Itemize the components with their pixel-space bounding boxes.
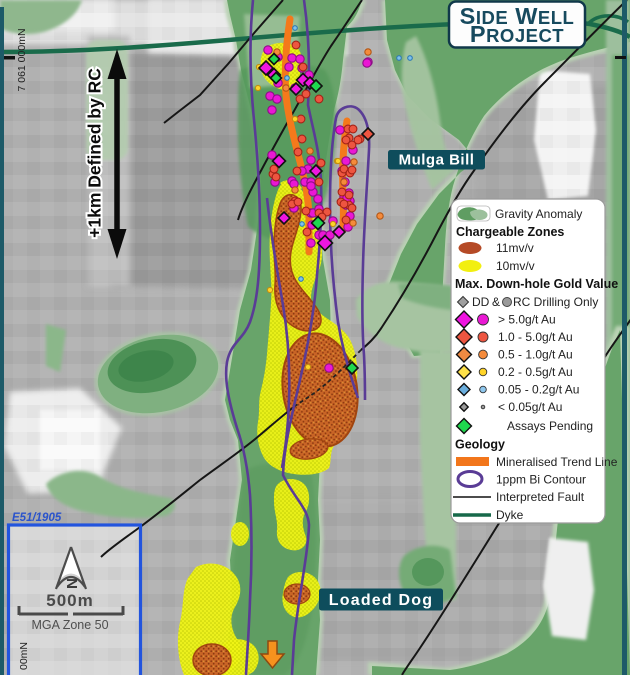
svg-text:Max. Down-hole Gold Value: Max. Down-hole Gold Value: [455, 277, 618, 291]
svg-text:7 061 000mN: 7 061 000mN: [16, 28, 28, 91]
svg-text:N: N: [63, 578, 80, 589]
svg-text:1.0 - 5.0g/t Au: 1.0 - 5.0g/t Au: [498, 330, 573, 344]
svg-text:+1km Defined by RC: +1km Defined by RC: [85, 68, 105, 238]
svg-text:0.5 - 1.0g/t Au: 0.5 - 1.0g/t Au: [498, 348, 573, 362]
svg-text:DD: DD: [472, 295, 490, 309]
svg-text:&: &: [492, 295, 500, 309]
svg-text:10mv/v: 10mv/v: [496, 259, 535, 273]
svg-text:0.2 - 0.5g/t Au: 0.2 - 0.5g/t Au: [498, 365, 573, 379]
svg-text:Mineralised Trend Line: Mineralised Trend Line: [496, 455, 618, 469]
svg-text:Chargeable Zones: Chargeable Zones: [456, 225, 564, 239]
svg-text:E51/1905: E51/1905: [12, 512, 62, 524]
svg-text:> 5.0g/t Au: > 5.0g/t Au: [498, 313, 556, 327]
svg-text:00mN: 00mN: [18, 642, 30, 670]
svg-text:< 0.05g/t Au: < 0.05g/t Au: [498, 400, 562, 414]
svg-text:Interpreted Fault: Interpreted Fault: [496, 490, 585, 504]
svg-text:Loaded Dog: Loaded Dog: [329, 592, 433, 609]
svg-text:MGA Zone 50: MGA Zone 50: [31, 618, 108, 632]
svg-text:Mulga Bill: Mulga Bill: [399, 152, 475, 169]
svg-text:PROJECT: PROJECT: [470, 21, 564, 47]
svg-text:Geology: Geology: [455, 438, 505, 452]
svg-text:Dyke: Dyke: [496, 508, 524, 522]
svg-text:0.05 - 0.2g/t Au: 0.05 - 0.2g/t Au: [498, 383, 579, 397]
svg-text:RC Drilling Only: RC Drilling Only: [513, 295, 598, 309]
svg-text:11mv/v: 11mv/v: [496, 241, 534, 255]
svg-text:1ppm Bi Contour: 1ppm Bi Contour: [496, 473, 586, 487]
svg-text:500m: 500m: [46, 591, 93, 610]
svg-text:Assays Pending: Assays Pending: [507, 419, 593, 433]
svg-text:Gravity Anomaly: Gravity Anomaly: [495, 207, 582, 221]
